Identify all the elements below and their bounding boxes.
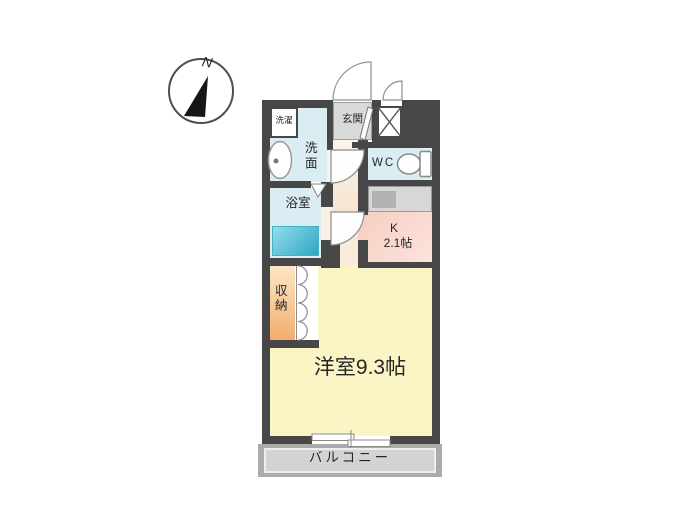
plan-vector-overlay bbox=[0, 0, 700, 525]
western-room-label: 洋室9.3帖 bbox=[280, 356, 440, 379]
toilet-icon bbox=[398, 154, 421, 174]
bathroom-door-mark bbox=[311, 184, 326, 197]
kitchen-label: K bbox=[370, 222, 418, 235]
balcony-label: バルコニー bbox=[264, 451, 436, 466]
washroom-door-arc bbox=[331, 150, 364, 183]
sink-drain-icon bbox=[274, 159, 279, 164]
entrance-label: 玄関 bbox=[333, 114, 372, 126]
washroom-label: 洗面 bbox=[302, 141, 316, 172]
sink-icon bbox=[269, 142, 292, 179]
kitchen-size-label: 2.1帖 bbox=[368, 237, 428, 250]
bifold-door-arcs bbox=[298, 266, 307, 340]
bathroom-label: 浴室 bbox=[276, 197, 320, 211]
toilet-tank-icon bbox=[420, 152, 431, 177]
floor-plan-page: N 洗濯 洗面 玄関 WC 浴室 K 2.1帖 収納 洋室9.3帖 バルコニー bbox=[0, 0, 700, 525]
laundry-label: 洗濯 bbox=[270, 116, 298, 125]
compass-needle-icon bbox=[184, 76, 208, 117]
room-door-arc bbox=[331, 212, 364, 245]
storage-label: 収納 bbox=[272, 284, 286, 313]
window-pane-right bbox=[348, 440, 390, 447]
wc-label: WC bbox=[372, 157, 395, 170]
entrance-door-arc bbox=[333, 62, 371, 100]
meter-box-door-arc bbox=[383, 81, 402, 100]
